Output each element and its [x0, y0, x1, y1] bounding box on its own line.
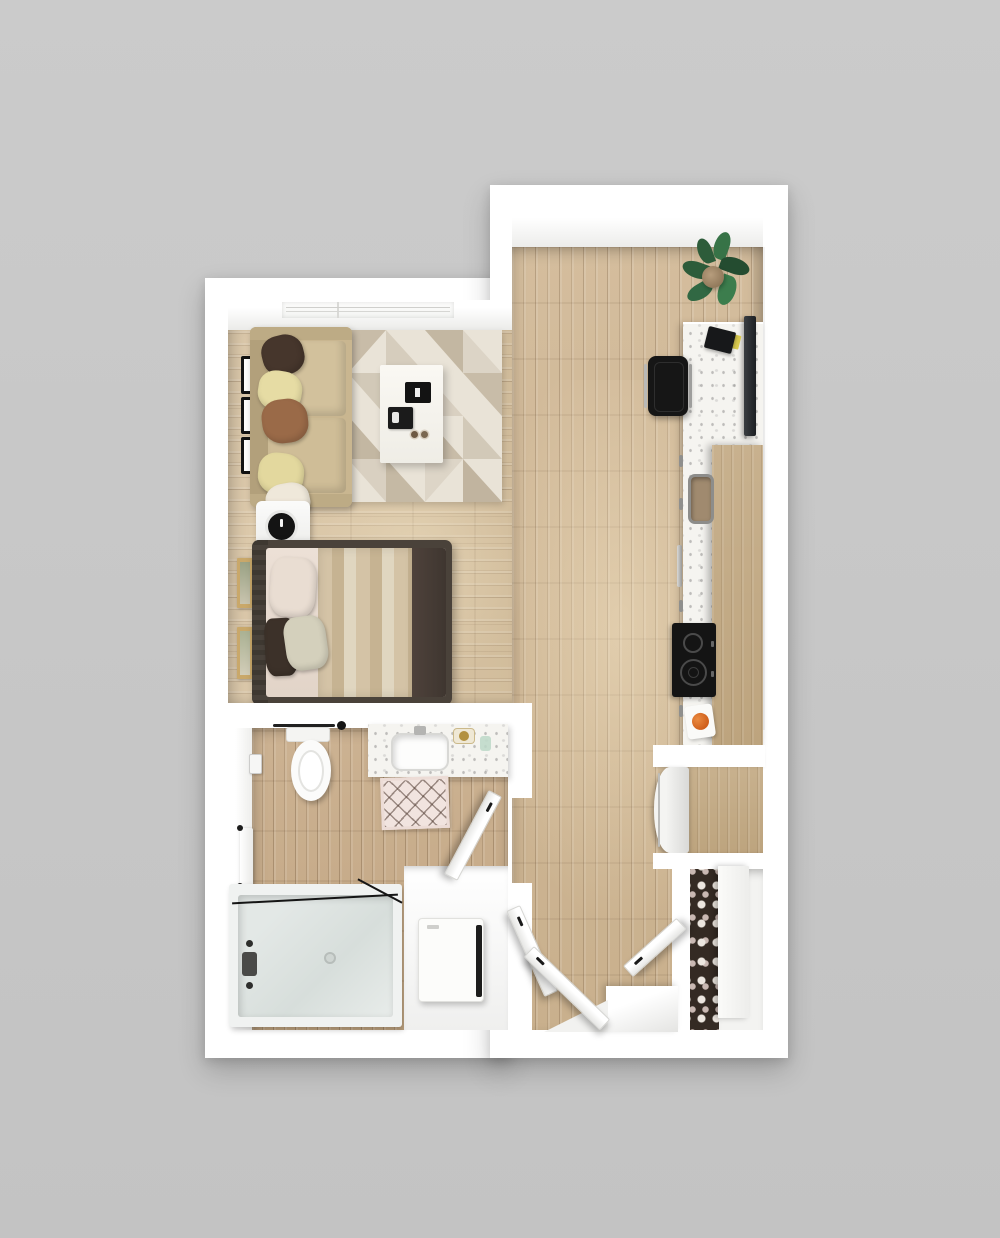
tray-book	[415, 388, 420, 397]
window-mullion	[337, 302, 339, 318]
burner-inner-ring	[688, 667, 699, 678]
wall-hook	[337, 721, 346, 730]
tub-handle	[246, 982, 253, 989]
toilet-seat	[298, 750, 324, 792]
door-handle	[536, 957, 545, 966]
cooktop	[672, 623, 716, 697]
bed	[252, 540, 452, 705]
dishwasher-handle	[677, 545, 682, 587]
tub-drain	[324, 952, 336, 964]
artwork-canvas	[240, 631, 250, 675]
stool-frame	[644, 364, 647, 408]
floorplan-canvas	[0, 0, 1000, 1238]
hanging-towel	[240, 828, 253, 886]
washer-controls	[427, 925, 439, 929]
stool-frame	[689, 364, 692, 408]
bar-stool	[648, 356, 688, 416]
tub-basin	[238, 895, 393, 1017]
towel-bracket	[237, 825, 243, 831]
cabinet-handle	[679, 705, 683, 717]
washer-dryer	[418, 918, 484, 1002]
shoe-closet	[690, 869, 763, 1030]
fridge-door-edge	[658, 773, 660, 847]
bath-mat	[380, 776, 450, 830]
toilet-bowl	[291, 740, 331, 801]
table-cup	[411, 431, 418, 438]
vanity-sink	[391, 733, 449, 771]
artwork-canvas	[240, 562, 250, 604]
burner-large	[680, 659, 707, 686]
tv	[744, 316, 756, 436]
potted-plant	[678, 236, 748, 316]
clock	[268, 513, 295, 540]
orange-fruit	[691, 712, 710, 731]
vanity-faucet	[414, 726, 426, 735]
door-handle	[517, 916, 524, 926]
washer-door-slot	[476, 925, 482, 997]
bed-pillow-cream	[268, 555, 318, 618]
door-handle	[634, 956, 643, 965]
framed-artwork	[237, 558, 253, 608]
cooktop-knob	[711, 641, 714, 647]
cabinet-handle	[679, 455, 683, 467]
refrigerator	[654, 767, 689, 853]
cooktop-knob	[711, 671, 714, 677]
burner-small	[683, 633, 703, 653]
tub-handle	[246, 940, 253, 947]
gold-tray	[454, 729, 474, 743]
table-tray	[405, 382, 431, 403]
door-handle	[486, 802, 493, 812]
cabinet-handle	[679, 498, 683, 510]
window-blind-line	[286, 307, 450, 308]
tub-faucet	[242, 952, 257, 976]
table-cup	[421, 431, 428, 438]
glass-cup	[480, 736, 491, 751]
bathtub	[229, 884, 402, 1027]
cabinet-handle	[679, 600, 683, 612]
blanket	[318, 548, 414, 697]
upper-cabinets	[712, 445, 763, 745]
toilet-paper-holder	[249, 754, 262, 774]
entry-landing	[606, 986, 678, 1032]
sofa-armrest	[250, 327, 352, 340]
table-tray	[388, 407, 413, 429]
shoe-rack	[690, 869, 719, 1030]
kitchen-sink	[688, 474, 714, 524]
tray-cup	[392, 412, 399, 423]
fruit-bowl	[684, 703, 716, 740]
window-blind-line	[286, 311, 450, 312]
clock-hand	[280, 519, 283, 527]
gold-soap	[459, 731, 469, 741]
duvet-dark	[412, 548, 446, 697]
stool-seat-stitch	[654, 362, 684, 412]
bathroom-right-wall-upper	[508, 703, 532, 798]
plant-pot	[702, 266, 724, 288]
framed-artwork	[237, 627, 253, 679]
closet-sliding-panel	[718, 866, 749, 1018]
coffee-table	[380, 365, 443, 463]
vanity	[368, 724, 508, 777]
pantry-cabinet	[688, 767, 763, 853]
sofa	[250, 327, 352, 507]
fridge-nook-top-wall	[653, 745, 765, 767]
window	[282, 302, 454, 318]
